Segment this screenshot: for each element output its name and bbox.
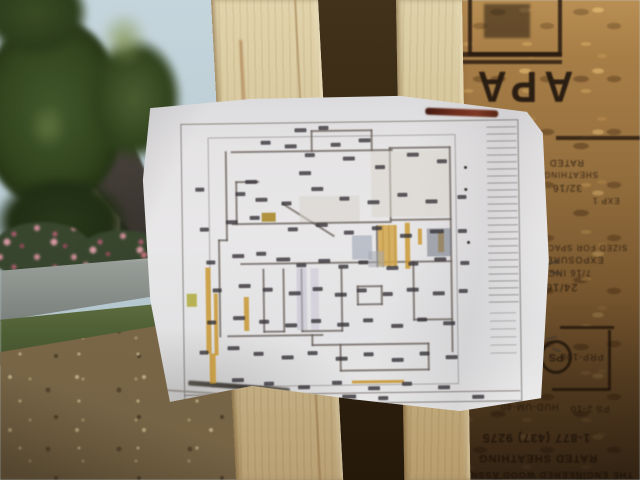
plan-wall-line <box>357 285 383 287</box>
plan-dimension-label <box>438 385 450 389</box>
osb-stamp-rule <box>560 326 614 329</box>
osb-stamp-rule <box>458 52 562 57</box>
plan-highlight <box>187 294 197 307</box>
plan-dimension-label <box>213 288 222 292</box>
plan-dimension-label <box>298 385 310 389</box>
plan-dimension-label <box>195 188 204 192</box>
plan-dimension-label <box>261 141 271 145</box>
plan-wall-line <box>218 239 228 241</box>
plan-dimension-label <box>299 171 311 175</box>
plan-wall-line <box>263 330 285 332</box>
plan-wall-line <box>310 130 312 152</box>
plan-dimension-label <box>226 220 238 224</box>
tack-nail <box>467 241 470 244</box>
plan-dimension-label <box>232 378 244 382</box>
plan-dimension-label <box>200 351 209 355</box>
osb-stamp-circle-logo: PS <box>540 340 572 374</box>
plan-dimension-label <box>318 259 330 263</box>
plan-dimension-label <box>430 229 444 233</box>
plan-dimension-label <box>338 265 348 269</box>
osb-stamp-rule <box>458 60 562 64</box>
osb-stamp-text: EXP 1 <box>592 196 620 204</box>
plan-dimension-label <box>367 200 379 204</box>
plan-dimension-label <box>446 355 458 359</box>
osb-stamp-rule <box>552 388 610 391</box>
plan-dimension-label <box>305 153 315 157</box>
plan-dimension-label <box>368 386 380 390</box>
plan-dimension-label <box>378 396 388 400</box>
plan-dimension-label <box>206 260 215 264</box>
osb-stamp-logo-mark <box>484 4 530 38</box>
plan-dimension-label <box>460 261 469 265</box>
plan-dimension-label <box>313 287 323 291</box>
plan-dimension-label <box>285 323 297 327</box>
tack-nail <box>464 188 467 191</box>
plan-highlight <box>244 297 249 331</box>
osb-stamp-text: 1-877 (437) 9275 <box>482 432 590 444</box>
plan-dimension-label <box>343 157 355 161</box>
plan-dimension-label <box>288 227 298 231</box>
osb-stamp-text: SHEATHING <box>543 170 598 178</box>
plan-dimension-label <box>250 216 260 220</box>
osb-stamp-text: PS 2-10 <box>570 404 610 413</box>
marker-stroke <box>425 108 498 118</box>
plan-dimension-label <box>339 197 349 201</box>
plan-dimension-label <box>408 262 418 266</box>
osb-stamp-text: 24/16 <box>545 281 578 292</box>
plan-dimension-label <box>357 288 367 292</box>
plan-dimension-label <box>245 180 257 184</box>
plan-dimension-label <box>358 260 368 264</box>
plan-dimension-label <box>425 199 437 203</box>
plan-dimension-label <box>255 198 267 202</box>
plan-dimension-label <box>336 357 348 361</box>
plan-dimension-label <box>282 355 294 359</box>
plan-dimension-label <box>363 318 373 322</box>
plan-dimension-label <box>397 193 407 197</box>
plan-wall-line <box>311 334 313 346</box>
plan-dimension-label <box>264 382 274 386</box>
plan-dimension-label <box>256 252 266 256</box>
plan-dimension-label <box>331 143 341 147</box>
plan-dimension-label <box>332 381 342 385</box>
plan-dimension-label <box>391 324 403 328</box>
plan-wall-line <box>357 303 383 305</box>
plan-dimension-label <box>232 254 244 258</box>
plan-dimension-label <box>318 126 328 130</box>
plan-dimension-label <box>235 192 245 196</box>
plan-dimension-label <box>375 165 385 169</box>
plan-dimension-label <box>259 320 269 324</box>
plan-dimension-label <box>437 159 447 163</box>
osb-stamp-text: RATED SHEATHING <box>478 452 597 463</box>
plan-dimension-label <box>337 323 349 327</box>
plan-dimension-label <box>402 382 412 386</box>
plan-shaded-area <box>368 251 384 267</box>
osb-stamp-rule <box>556 136 640 140</box>
plan-dimension-label <box>263 288 273 292</box>
plan-dimension-label <box>285 144 297 148</box>
tack-nail <box>464 166 467 169</box>
plan-highlight <box>210 353 216 383</box>
plan-highlight <box>418 229 422 245</box>
plan-dimension-label <box>311 319 321 323</box>
osb-stamp-text: 32/16 <box>552 182 582 192</box>
plan-dimension-label <box>289 291 301 295</box>
plan-dimension-label <box>407 288 419 292</box>
osb-stamp-logo-box <box>468 0 562 56</box>
plan-dimension-label <box>207 320 216 324</box>
plan-dimension-label <box>400 234 412 238</box>
plan-dimension-label <box>407 153 419 157</box>
osb-stamp-text: RATED <box>549 158 584 167</box>
plan-dimension-label <box>281 201 291 205</box>
floor-plan-sheet <box>130 85 560 425</box>
plan-dimension-label <box>342 395 356 399</box>
plan-dimension-label <box>359 138 371 142</box>
plan-highlight <box>262 213 276 222</box>
plan-dimension-label <box>443 321 455 325</box>
plan-dimension-label <box>239 284 251 288</box>
plan-dimension-label <box>316 223 328 227</box>
plan-dimension-label <box>458 229 467 233</box>
plan-dimension-label <box>364 352 374 356</box>
plan-dimension-label <box>434 257 446 261</box>
plan-dimension-label <box>386 266 398 270</box>
osb-stamp-text: THE ENGINEERED WOOD ASSN <box>470 470 633 479</box>
plan-dimension-label <box>311 187 323 191</box>
plan-shaded-area <box>299 195 359 222</box>
plan-dimension-label <box>472 395 484 399</box>
plan-notes-column <box>490 312 517 360</box>
plan-dimension-label <box>372 226 382 230</box>
plan-dimension-label <box>308 351 318 355</box>
plan-dimension-label <box>417 318 427 322</box>
osb-stamp-rule <box>608 330 611 390</box>
plan-dimension-label <box>227 346 239 350</box>
plan-dimension-label <box>420 351 430 355</box>
plan-shaded-area <box>296 268 307 330</box>
plan-dimension-label <box>457 195 466 199</box>
construction-site-photo: APA RATEDSHEATHING32/16EXP 1SIZED FOR SP… <box>0 0 640 480</box>
plan-dimension-label <box>433 291 445 295</box>
plan-dimension-label <box>335 293 347 297</box>
plan-wall-line <box>427 342 429 370</box>
plan-dimension-label <box>459 289 468 293</box>
plan-dimension-label <box>254 352 264 356</box>
plan-dimension-label <box>296 263 306 267</box>
plan-dimension-label <box>344 231 354 235</box>
plan-dimension-label <box>294 128 306 132</box>
plan-dimension-label <box>392 358 404 362</box>
plan-wall-line <box>370 129 372 151</box>
plan-notes-column <box>486 126 518 302</box>
plan-dimension-label <box>233 316 245 320</box>
plan-dimension-label <box>276 257 290 261</box>
osb-stamp-text: HUD-UM-40 <box>500 402 559 411</box>
plan-dimension-label <box>200 228 209 232</box>
plan-dimension-label <box>383 292 393 296</box>
